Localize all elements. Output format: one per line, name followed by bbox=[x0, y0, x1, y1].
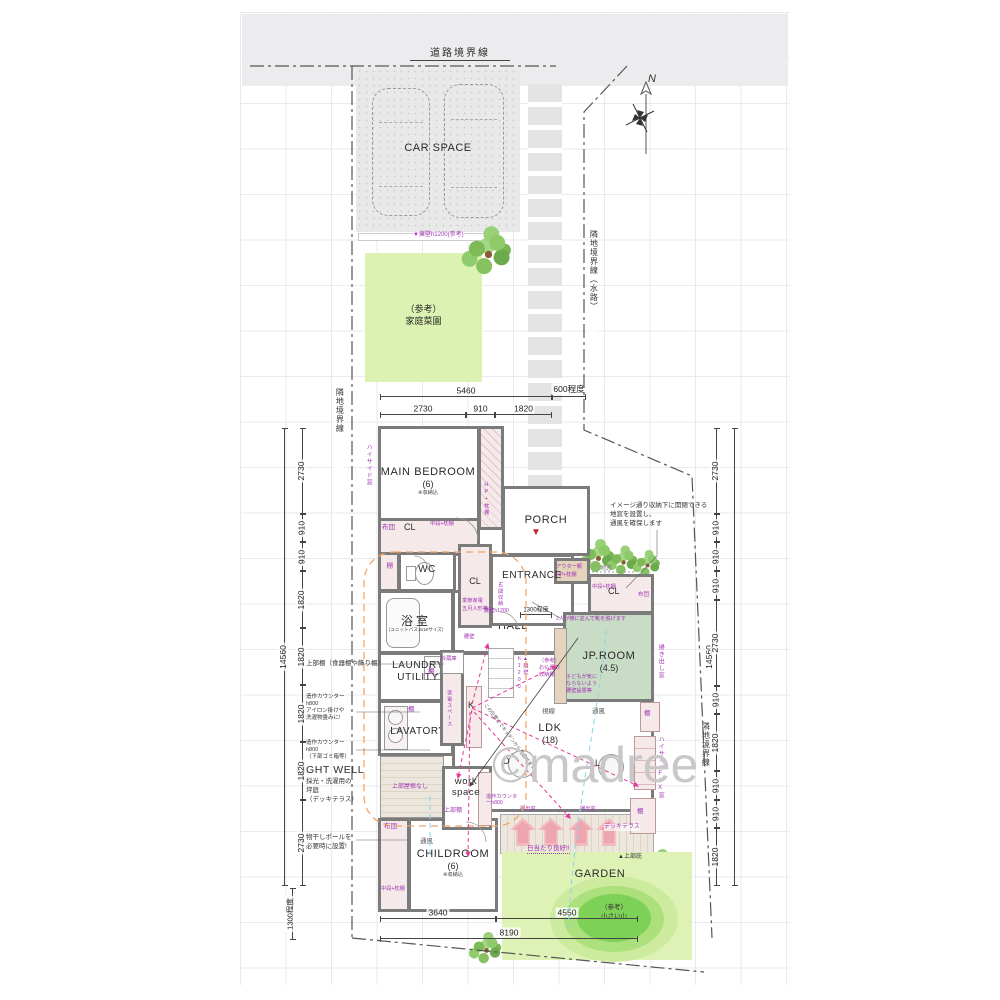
sunny-label: 日当たり良好!! bbox=[527, 845, 570, 854]
jimado-note-1: イメージ通り収納下に開閉できる bbox=[610, 502, 707, 510]
label-main-bedroom-size: (6) bbox=[368, 479, 488, 489]
jp-kids-note-3: 腰壁設置等 bbox=[566, 688, 592, 694]
label-light-well: LIGHT WELL bbox=[296, 764, 386, 776]
dim-left-4: 1820 bbox=[302, 628, 303, 685]
dim-top2-2730: 2730 bbox=[380, 414, 466, 415]
yane-nashi-label: 上部屋根なし bbox=[392, 784, 428, 791]
futon-label: 布団 bbox=[382, 524, 395, 532]
deck-terrace-label: デッキテラス bbox=[604, 824, 640, 831]
label-ldk: LDK bbox=[520, 722, 580, 734]
dim-left-7: 2730 bbox=[302, 800, 303, 886]
stepping-stone-path bbox=[528, 84, 562, 486]
dim-right-1: 910 bbox=[716, 514, 717, 542]
hakidashi-v-label: 掃き出し窓 bbox=[656, 644, 663, 700]
dim-right-8: 910 bbox=[716, 800, 717, 828]
dim-top2-910: 910 bbox=[466, 414, 495, 415]
closet-hp bbox=[478, 426, 504, 530]
dim-right-2: 910 bbox=[716, 542, 717, 571]
tsufu-label: 通風 bbox=[592, 708, 605, 716]
right-upper-boundary-label: 隣地境界線（水路） bbox=[588, 230, 598, 360]
butsudan-label-1: （参考） bbox=[539, 658, 560, 664]
kitchen-island bbox=[466, 686, 482, 748]
light-well-note-1: 採光・洗濯用の bbox=[306, 778, 352, 786]
kitchen-mark: K bbox=[468, 700, 474, 710]
vegetable-garden-label-2: 家庭菜園 bbox=[365, 314, 482, 327]
retaining-wall-label: ▼擁壁h1200(参考) bbox=[413, 232, 464, 239]
dim-left-5: 1820 bbox=[302, 685, 303, 742]
dim-top2-1820: 1820 bbox=[495, 414, 552, 415]
cl-label: CL bbox=[404, 522, 416, 532]
jimado-note-3: 通風を確保します bbox=[610, 520, 662, 528]
dim-left-1300: 1300程度 bbox=[292, 888, 293, 940]
dim-entrance-step: 1300程度 bbox=[520, 614, 552, 615]
chudan-label: 中段+枕棚 bbox=[430, 521, 456, 527]
jimado-note-2: 地窓を設置し、 bbox=[610, 511, 656, 519]
chudan-label: 中段+枕棚 bbox=[381, 886, 407, 892]
kisetsu-label: 季節家電 bbox=[462, 598, 490, 604]
reizoko-label: 冷蔵庫 bbox=[441, 656, 457, 662]
shelf-left-note: 上部棚（食器棚や飾り棚） bbox=[306, 660, 384, 668]
dim-right-3: 910 bbox=[716, 571, 717, 600]
sink-icon bbox=[388, 710, 403, 725]
dim-right-6: 1820 bbox=[716, 714, 717, 771]
dim-left-2: 910 bbox=[302, 542, 303, 571]
car-space-label: CAR SPACE bbox=[356, 142, 520, 154]
light-well-note-3: （デッキテラス） bbox=[306, 796, 358, 804]
north-label: N bbox=[648, 72, 656, 86]
closet-entrance bbox=[458, 544, 492, 628]
dim-right-0: 2730 bbox=[716, 428, 717, 514]
dim-right-total: 14560 bbox=[734, 428, 735, 886]
outer-label: アウター類 bbox=[556, 564, 582, 570]
hakidashi-label: 掃出窓 bbox=[580, 806, 596, 812]
dim-right-7: 910 bbox=[716, 771, 717, 800]
dim-left-total: 14560 bbox=[284, 428, 285, 886]
jimado-label: 地窓 bbox=[600, 566, 612, 573]
butsudan-label-2: お仏壇の bbox=[539, 665, 560, 671]
label-porch: PORCH bbox=[502, 514, 590, 526]
pole-note-1: 物干しポールを bbox=[306, 834, 352, 842]
dim-left-3: 1820 bbox=[302, 571, 303, 628]
tree-icon bbox=[646, 564, 650, 568]
pantry-shelf bbox=[488, 648, 514, 698]
hill-label-1: （参考） bbox=[574, 904, 654, 912]
dim-bottom-8190: 8190 bbox=[380, 938, 638, 939]
genkan-shuno-label: 玄関収納 bbox=[497, 582, 503, 608]
watermark: ©madree bbox=[492, 736, 698, 794]
dim-left-6: 1820 bbox=[302, 742, 303, 800]
tana-label: 棚 bbox=[644, 710, 651, 718]
counter-ws-label: 造作カウンターh800 bbox=[486, 794, 520, 806]
label-wc: WC bbox=[398, 564, 456, 575]
garden-label: GARDEN bbox=[540, 868, 660, 880]
butsudan-label-3: 収納棚 bbox=[539, 672, 555, 678]
eave-label: ▲上部庇 bbox=[618, 854, 642, 862]
dim-top-600: 600程度 bbox=[552, 396, 586, 397]
label-childroom-size: (6) bbox=[398, 861, 508, 871]
hp-makura-label: HP+枕棚 bbox=[556, 572, 577, 578]
tana-label: 棚 bbox=[428, 668, 435, 676]
cl-label: CL bbox=[608, 586, 620, 596]
counter1-note-4: 洗濯物畳みに! bbox=[306, 715, 341, 722]
jp-kids-note-1: 子どもが気に bbox=[566, 674, 597, 680]
dim-right-5: 910 bbox=[716, 686, 717, 714]
floor-plan-canvas: CAR SPACE ▼擁壁h1200(参考) （参考） 家庭菜園 bbox=[0, 0, 1000, 1000]
tree-icon bbox=[484, 948, 489, 953]
label-main-bedroom-note: ※収納込 bbox=[368, 490, 488, 497]
dim-top-5460: 5460 bbox=[380, 396, 552, 397]
koshikabe-v-label: ▲腰壁h1200 bbox=[516, 656, 528, 706]
dim-right-4: 2730 bbox=[716, 600, 717, 686]
futon-label: 布団 bbox=[384, 823, 397, 831]
tree-icon bbox=[621, 560, 625, 564]
cl-label: CL bbox=[458, 576, 492, 586]
tana-label: 棚 bbox=[408, 706, 415, 714]
tana-label: 棚 bbox=[637, 808, 644, 816]
shoes-note: 2人が横に並んで靴を脱げます bbox=[556, 616, 626, 622]
label-jp-room-size: (4.5) bbox=[565, 663, 653, 673]
left-boundary-label: 隣地境界線 bbox=[334, 388, 344, 478]
koshikabe-label: 腰壁 bbox=[464, 634, 474, 640]
highside-window-label: ハイサイド窓 bbox=[364, 444, 371, 508]
label-jp-room: JP.ROOM bbox=[565, 650, 653, 662]
hakidashi-label: 掃出窓 bbox=[520, 806, 536, 812]
right-lower-boundary-label: 隣地境界線 bbox=[700, 722, 710, 802]
light-well-note-2: 坪庭 bbox=[306, 787, 319, 795]
road-boundary-label: 道路境界線 bbox=[410, 44, 510, 61]
koshikabe-h-label: 腰壁h1200 bbox=[484, 608, 509, 614]
hp-makura-label: HP+枕棚 bbox=[483, 482, 489, 516]
dim-bottom-4550: 4550 bbox=[496, 918, 638, 919]
tree-icon bbox=[596, 556, 601, 561]
jp-kids-note-2: ならないよう bbox=[566, 681, 597, 687]
kaden-label: 家電スペース bbox=[446, 690, 452, 734]
label-work-1: work bbox=[438, 776, 494, 787]
counter2-note-3: （下部ゴミ箱等） bbox=[306, 754, 350, 761]
dim-left-0: 2730 bbox=[302, 428, 303, 514]
pole-note-2: 必要時に設置! bbox=[306, 843, 347, 851]
tree-icon bbox=[485, 251, 492, 258]
tana-label: 棚 bbox=[384, 562, 392, 584]
entry-arrow-icon: ▼ bbox=[531, 527, 541, 538]
label-childroom-note: ※収納込 bbox=[398, 872, 508, 879]
jobu-tana-label: 上部棚 bbox=[444, 808, 462, 815]
label-bath-note: （ユニットバス1616サイズ） bbox=[378, 627, 454, 633]
label-main-bedroom: MAIN BEDROOM bbox=[368, 466, 488, 478]
shisen-label: 視線 bbox=[542, 708, 555, 716]
futon-label: 布団 bbox=[638, 592, 649, 599]
dim-bottom-3640: 3640 bbox=[380, 918, 496, 919]
dim-right-9: 1820 bbox=[716, 828, 717, 886]
label-childroom: CHILDROOM bbox=[398, 848, 508, 860]
tsufu-label: 通風 bbox=[420, 838, 433, 846]
dim-left-1: 910 bbox=[302, 514, 303, 542]
